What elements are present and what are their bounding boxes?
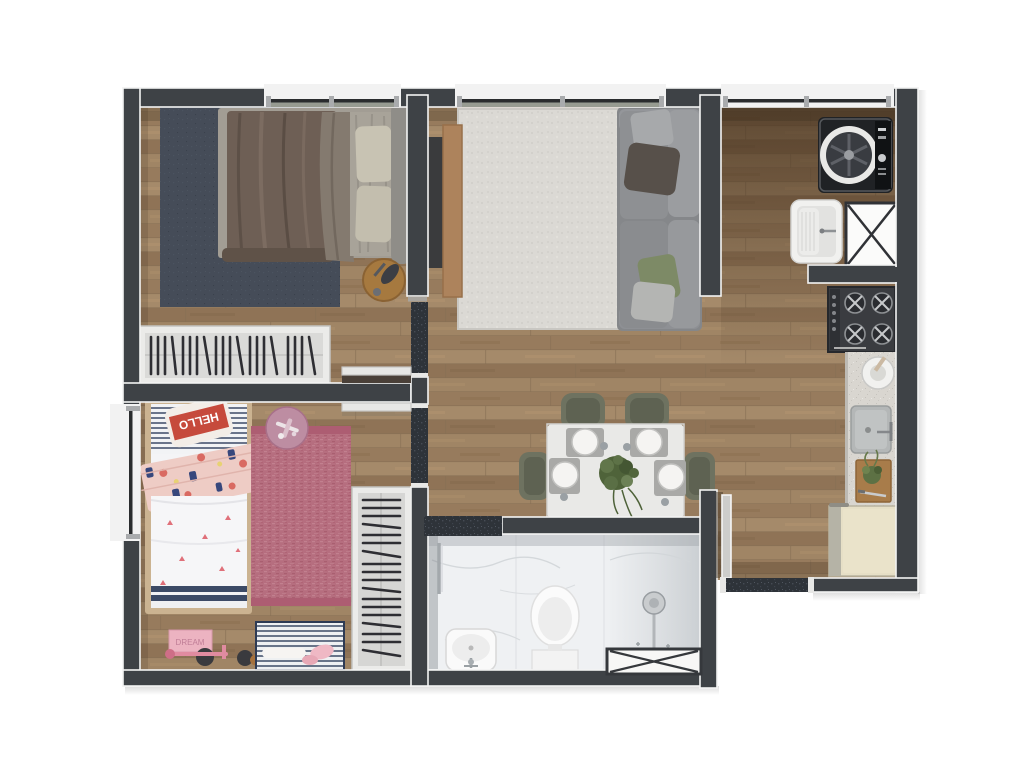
svg-text:DREAM: DREAM [176, 638, 205, 647]
